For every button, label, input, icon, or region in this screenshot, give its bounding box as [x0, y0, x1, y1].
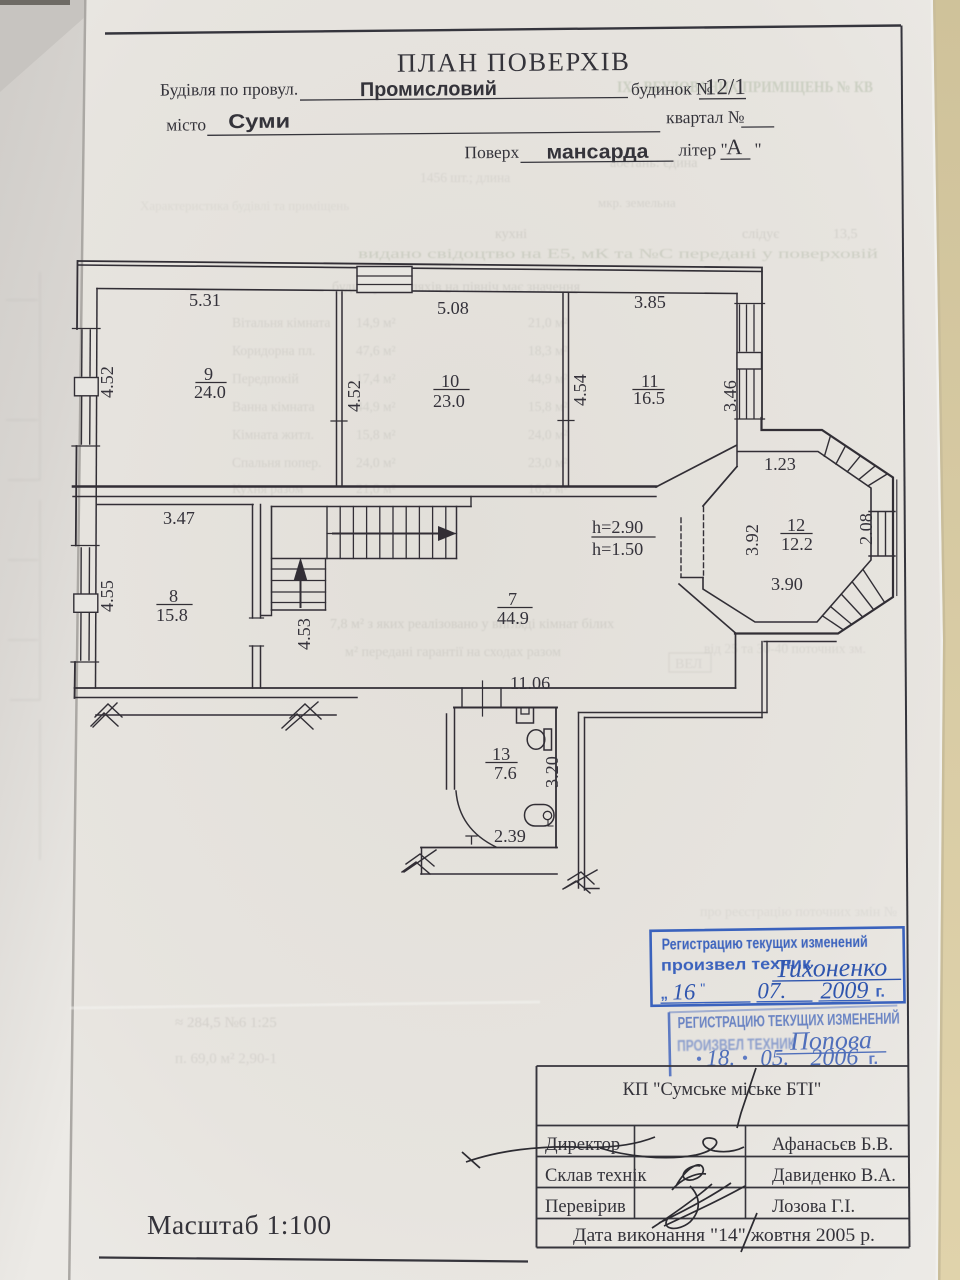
svg-text:21,0 м²: 21,0 м²	[528, 315, 568, 330]
svg-text:Перевірив: Перевірив	[545, 1197, 626, 1217]
svg-text:Регистрацию текущих изменений: Регистрацию текущих изменений	[662, 934, 868, 954]
svg-text:2.39: 2.39	[494, 826, 526, 846]
svg-text:14,9 м²: 14,9 м²	[356, 315, 396, 330]
svg-text:1456 шт.; длина: 1456 шт.; длина	[420, 170, 510, 185]
svg-text:10: 10	[441, 371, 459, 391]
svg-text:кухні: кухні	[495, 227, 527, 242]
svg-text:7,8 м² з яких реалізовано у ви: 7,8 м² з яких реалізовано у вигляді кімн…	[330, 617, 614, 632]
svg-text:Ванна кімната: Ванна кімната	[232, 399, 315, 414]
svg-text:„: „	[660, 986, 668, 1003]
svg-text:Характеристика будівлі та прим: Характеристика будівлі та приміщень	[140, 198, 349, 213]
svg-text:Давиденко В.А.: Давиденко В.А.	[772, 1166, 896, 1186]
svg-text:квартал №: квартал №	[666, 107, 745, 128]
svg-text:16: 16	[672, 979, 696, 1004]
svg-text:мансарда: мансарда	[546, 141, 649, 164]
svg-text:4.55: 4.55	[97, 580, 117, 612]
svg-text:15,8 м²: 15,8 м²	[356, 427, 396, 442]
svg-text:Кухня разом: Кухня разом	[232, 481, 304, 496]
svg-text:3.92: 3.92	[742, 524, 762, 556]
svg-text:Суми: Суми	[228, 111, 290, 133]
svg-text:13,5: 13,5	[833, 227, 858, 242]
svg-text:Кімната житл.: Кімната житл.	[232, 427, 314, 442]
svg-text:3.90: 3.90	[771, 574, 803, 594]
svg-text:п. 69,0 м² 2,90-1: п. 69,0 м² 2,90-1	[175, 1051, 277, 1067]
svg-text:3.46: 3.46	[720, 380, 740, 412]
svg-text:44,9 м²: 44,9 м²	[528, 371, 568, 386]
svg-text:4.52: 4.52	[97, 366, 117, 398]
svg-text:12.2: 12.2	[781, 534, 813, 554]
svg-text:слідує: слідує	[742, 227, 779, 242]
svg-text:7.6: 7.6	[494, 763, 517, 783]
svg-text:8: 8	[169, 586, 178, 606]
svg-text:г.: г.	[875, 984, 885, 1001]
svg-text:Дата виконання "14" жовтня 200: Дата виконання "14" жовтня 2005 р.	[573, 1226, 875, 1246]
svg-text:2006: 2006	[810, 1044, 859, 1071]
svg-text:24.0: 24.0	[194, 382, 226, 402]
svg-text:4.52: 4.52	[344, 380, 364, 412]
svg-text:": "	[700, 980, 705, 996]
svg-text:ПЛАН ПОВЕРХІВ: ПЛАН ПОВЕРХІВ	[397, 46, 631, 78]
svg-text:5.08: 5.08	[437, 298, 469, 318]
svg-text:Промисловий: Промисловий	[360, 78, 497, 101]
svg-text:ВЕЛ: ВЕЛ	[675, 657, 703, 672]
svg-text:18,3 м²: 18,3 м²	[528, 343, 568, 358]
svg-text:24,0 м²: 24,0 м²	[528, 427, 568, 442]
svg-text:47,6 м²: 47,6 м²	[356, 343, 396, 358]
svg-text:Масштаб 1:100: Масштаб 1:100	[147, 1209, 332, 1240]
svg-text:7: 7	[508, 589, 517, 609]
svg-text:9: 9	[204, 364, 213, 384]
svg-text:Директор: Директор	[545, 1135, 620, 1155]
svg-text:16,5 м²: 16,5 м²	[528, 481, 568, 496]
svg-text:h=1.50: h=1.50	[592, 539, 643, 559]
svg-text:Вітальня кімната: Вітальня кімната	[232, 315, 330, 330]
svg-text:44.9: 44.9	[497, 608, 529, 628]
svg-text:2.08: 2.08	[856, 513, 876, 545]
svg-text:Склав технік: Склав технік	[545, 1166, 646, 1186]
svg-text:Лозова Г.І.: Лозова Г.І.	[772, 1197, 855, 1217]
svg-text:h=2.90: h=2.90	[592, 517, 643, 537]
svg-text:Коридорна пл.: Коридорна пл.	[232, 343, 315, 358]
svg-text:видано свідоцтво на Е5, мК та: видано свідоцтво на Е5, мК та №С передан…	[358, 247, 879, 262]
svg-text:А: А	[726, 134, 742, 159]
svg-text:3.20: 3.20	[542, 756, 562, 788]
svg-text:23.0: 23.0	[433, 391, 465, 411]
svg-text:м² передані гарантії на схода: м² передані гарантії на сходах разом	[345, 645, 561, 660]
svg-text:місто: місто	[166, 114, 206, 134]
svg-text:21,0 м²: 21,0 м²	[356, 481, 396, 496]
svg-text:мкр. земельна: мкр. земельна	[598, 195, 676, 210]
svg-text:13: 13	[492, 744, 510, 764]
svg-text:": "	[754, 139, 761, 159]
svg-text:12/1: 12/1	[705, 74, 746, 99]
svg-text:про реєстрацію поточних змін №: про реєстрацію поточних змін №	[700, 905, 897, 920]
svg-text:5.31: 5.31	[189, 290, 221, 310]
svg-text:Будівля по провул.: Будівля по провул.	[160, 79, 298, 100]
svg-text:24,0 м²: 24,0 м²	[356, 455, 396, 470]
svg-text:16.5: 16.5	[633, 388, 665, 408]
svg-text:4.54: 4.54	[570, 374, 590, 406]
svg-text:07.: 07.	[757, 978, 786, 1003]
svg-text:від 25 та 30-40 поточних зм.: від 25 та 30-40 поточних зм.	[704, 641, 866, 656]
svg-text:літер ": літер "	[678, 139, 727, 159]
svg-text:3.47: 3.47	[163, 508, 195, 528]
svg-text:Спальня попер.: Спальня попер.	[232, 455, 321, 470]
svg-text:•: •	[742, 1050, 748, 1067]
svg-text:Поверх: Поверх	[464, 142, 519, 162]
svg-text:15.8: 15.8	[156, 605, 188, 625]
svg-text:Афанасьєв Б.В.: Афанасьєв Б.В.	[772, 1135, 893, 1155]
svg-text:4.53: 4.53	[294, 618, 314, 650]
svg-text:15,8 м²: 15,8 м²	[528, 399, 568, 414]
svg-text:≈ 284,5 №6 1: ≈ 284,5 №6 1:25	[175, 1015, 277, 1031]
svg-text:11.06: 11.06	[510, 673, 550, 693]
svg-text:Передпокій: Передпокій	[232, 371, 299, 386]
svg-text:1.23: 1.23	[764, 454, 796, 474]
svg-text:12: 12	[787, 515, 805, 535]
svg-text:23,0 м²: 23,0 м²	[528, 455, 568, 470]
svg-text:КП "Сумське міське БТІ": КП "Сумське міське БТІ"	[623, 1080, 822, 1100]
svg-text:3.85: 3.85	[634, 292, 666, 312]
svg-text:будинок №: будинок №	[631, 78, 713, 99]
